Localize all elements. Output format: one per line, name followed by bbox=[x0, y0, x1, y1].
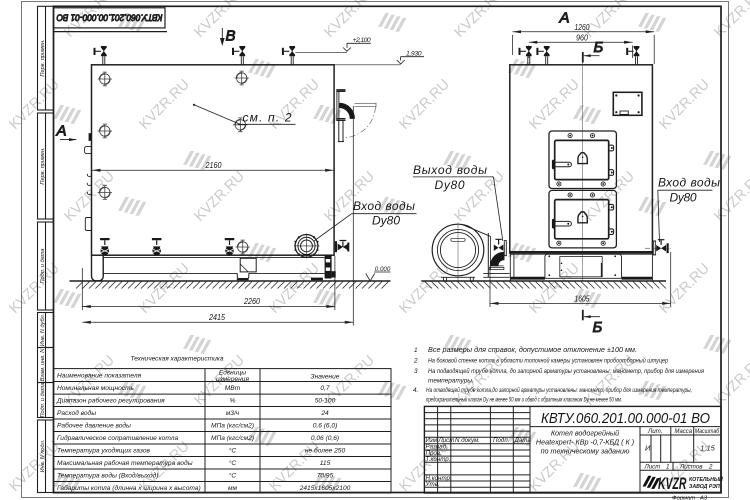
svg-text:24: 24 bbox=[320, 410, 329, 417]
svg-text:Листов: Листов bbox=[679, 464, 703, 471]
svg-text:МПа (кгс/см2): МПа (кгс/см2) bbox=[211, 423, 254, 430]
svg-text:Подп. и дата: Подп. и дата bbox=[40, 248, 46, 283]
svg-text:Инв. N дубл.: Инв. N дубл. bbox=[40, 314, 46, 346]
svg-text:А: А bbox=[559, 10, 570, 27]
svg-text:Б: Б bbox=[594, 39, 604, 56]
svg-text:Расход воды: Расход воды bbox=[57, 409, 96, 417]
svg-text:Габариты котла (длинна х ширин: Габариты котла (длинна х ширина х высота… bbox=[57, 484, 201, 492]
svg-text:Диапазон рабочего регулировани: Диапазон рабочего регулирования bbox=[56, 397, 165, 405]
svg-text:КВТУ.060.201.00.000-01 ВО: КВТУ.060.201.00.000-01 ВО bbox=[541, 411, 710, 427]
svg-text:А3: А3 bbox=[699, 495, 708, 500]
svg-text:KVZR.RU: KVZR.RU bbox=[192, 169, 248, 225]
svg-text:KVZR.RU: KVZR.RU bbox=[397, 261, 453, 317]
svg-text:Техническая характеристика: Техническая характеристика bbox=[131, 356, 224, 363]
svg-text:2: 2 bbox=[413, 358, 418, 365]
svg-text:предохранительный клапан Dу н: предохранительный клапан Dу не менее 50 … bbox=[426, 397, 622, 404]
svg-text:Инв. N подл.: Инв. N подл. bbox=[40, 440, 46, 473]
svg-text:KVZR.RU: KVZR.RU bbox=[527, 77, 583, 133]
svg-text:N докум.: N докум. bbox=[455, 437, 480, 444]
svg-text:KVZR.RU: KVZR.RU bbox=[7, 77, 63, 133]
svg-text:1,930: 1,930 bbox=[406, 50, 422, 57]
svg-text:KVZR.RU: KVZR.RU bbox=[267, 261, 323, 317]
svg-text:КВТУ.060.201.00.000-01 ВО: КВТУ.060.201.00.000-01 ВО bbox=[56, 12, 163, 23]
svg-text:KVZR.RU: KVZR.RU bbox=[322, 169, 378, 225]
svg-text:МПа (кгс/см2): МПа (кгс/см2) bbox=[211, 435, 254, 442]
svg-text:°С: °С bbox=[229, 472, 237, 480]
svg-text:Dy80: Dy80 bbox=[435, 178, 465, 192]
svg-text:Формат: Формат bbox=[672, 495, 695, 500]
svg-text:+2,100: +2,100 bbox=[353, 37, 371, 44]
svg-text:50-100: 50-100 bbox=[315, 398, 336, 405]
svg-text:%: % bbox=[230, 398, 236, 405]
svg-text:KVZR.RU: KVZR.RU bbox=[137, 261, 193, 317]
svg-text:1: 1 bbox=[666, 464, 669, 471]
svg-text:Heatexpert- КВр -0,7-КБД ( К ): Heatexpert- КВр -0,7-КБД ( К ) bbox=[536, 438, 634, 447]
svg-text:Рабочее давление воды: Рабочее давление воды bbox=[57, 422, 131, 430]
svg-text:KVZR.RU: KVZR.RU bbox=[137, 77, 193, 133]
svg-text:Наименование показателя: Наименование показателя bbox=[57, 373, 142, 380]
svg-text:см. п. 2: см. п. 2 bbox=[243, 111, 292, 125]
svg-text:KVZR.RU: KVZR.RU bbox=[712, 353, 750, 409]
svg-text:Взам. инв. N: Взам. инв. N bbox=[40, 348, 46, 382]
svg-text:не более 250: не более 250 bbox=[305, 447, 346, 455]
svg-text:2160: 2160 bbox=[205, 160, 222, 170]
svg-text:Перв. примен.: Перв. примен. bbox=[40, 39, 46, 76]
svg-text:Гидравлическое сопративление к: Гидравлическое сопративление котла bbox=[57, 434, 178, 442]
svg-text:°С: °С bbox=[229, 459, 237, 467]
svg-text:Т.контр.: Т.контр. bbox=[426, 456, 451, 463]
svg-text:мм: мм bbox=[228, 485, 238, 492]
svg-text:0,7: 0,7 bbox=[320, 385, 329, 392]
svg-text:измерения: измерения bbox=[216, 376, 249, 383]
svg-text:Масштаб: Масштаб bbox=[695, 428, 720, 435]
svg-text:4.: 4. bbox=[413, 387, 418, 394]
svg-text:Все размеры для справок, допус: Все размеры для справок, допустимое откл… bbox=[428, 345, 637, 354]
svg-text:2260: 2260 bbox=[243, 296, 260, 306]
svg-text:И: И bbox=[645, 444, 651, 453]
svg-text:0,6 (6,0): 0,6 (6,0) bbox=[313, 423, 338, 430]
svg-text:115: 115 bbox=[320, 460, 331, 467]
svg-text:3: 3 bbox=[414, 368, 418, 375]
svg-text:Вход воды: Вход воды bbox=[658, 176, 720, 190]
svg-text:1260: 1260 bbox=[575, 22, 590, 32]
svg-text:м3/ч: м3/ч bbox=[226, 410, 240, 417]
svg-text:2415: 2415 bbox=[208, 312, 225, 322]
svg-text:по техническому заданию: по техническому заданию bbox=[541, 447, 630, 456]
svg-text:Максимальная рабочая температу: Максимальная рабочая температура воды bbox=[57, 459, 193, 467]
svg-text:ЗАВОД РЭП: ЗАВОД РЭП bbox=[689, 484, 720, 490]
svg-text:Dy80: Dy80 bbox=[372, 214, 400, 228]
svg-text:1605: 1605 bbox=[575, 293, 590, 303]
svg-text:KVZR.RU: KVZR.RU bbox=[527, 261, 583, 317]
svg-text:°С: °С bbox=[229, 447, 237, 455]
svg-text:Масса: Масса bbox=[675, 428, 693, 435]
svg-text:2: 2 bbox=[708, 464, 713, 471]
svg-text:температуры.: температуры. bbox=[428, 378, 474, 385]
svg-text:KVZR: KVZR bbox=[658, 475, 687, 493]
svg-text:Котел водогрейный: Котел водогрейный bbox=[551, 429, 619, 438]
svg-text:Вход воды: Вход воды bbox=[353, 199, 415, 213]
svg-text:Dy80: Dy80 bbox=[670, 191, 697, 205]
svg-text:1: 1 bbox=[414, 347, 418, 354]
svg-text:На отводящей трубе котла,до за: На отводящей трубе котла,до запорной арм… bbox=[426, 387, 692, 394]
svg-text:А: А bbox=[56, 123, 67, 140]
svg-text:KVZR.RU: KVZR.RU bbox=[7, 261, 63, 317]
svg-text:70/95: 70/95 bbox=[317, 473, 334, 480]
svg-text:Лит.: Лит. bbox=[647, 428, 663, 435]
svg-text:Подп.: Подп. bbox=[493, 437, 509, 444]
svg-text:Перв. примен.: Перв. примен. bbox=[40, 147, 46, 184]
svg-text:Выход воды: Выход воды bbox=[413, 163, 487, 177]
svg-text:0,06 (0,6): 0,06 (0,6) bbox=[311, 435, 339, 442]
svg-text:МВт: МВт bbox=[225, 385, 241, 392]
svg-text:960: 960 bbox=[576, 32, 588, 42]
svg-text:KVZR.RU: KVZR.RU bbox=[657, 261, 713, 317]
svg-text:Подп. и дата: Подп. и дата bbox=[40, 382, 46, 417]
svg-text:KVZR.RU: KVZR.RU bbox=[657, 77, 713, 133]
svg-text:Лист: Лист bbox=[644, 464, 661, 471]
svg-text:Дата: Дата bbox=[514, 437, 532, 444]
svg-text:В: В bbox=[226, 28, 236, 45]
svg-text:Значение: Значение bbox=[311, 374, 340, 381]
svg-text:KVZR.RU: KVZR.RU bbox=[582, 169, 638, 225]
svg-text:2415х1605х2100: 2415х1605х2100 bbox=[299, 485, 351, 492]
svg-text:КОТЕЛЬНЫЙ: КОТЕЛЬНЫЙ bbox=[689, 475, 723, 483]
svg-text:KVZR.RU: KVZR.RU bbox=[397, 77, 453, 133]
svg-text:0.000: 0.000 bbox=[375, 266, 391, 273]
svg-text:На подводящей трубе котла, д: На подводящей трубе котла, до запорной а… bbox=[428, 367, 704, 375]
svg-text:На боковой стенке котла в обла: На боковой стенке котла в области топочн… bbox=[428, 357, 668, 365]
svg-text:Температура воды (Вход/выход): Температура воды (Вход/выход) bbox=[57, 472, 158, 480]
svg-text:1:15: 1:15 bbox=[700, 444, 715, 453]
svg-text:Утв.: Утв. bbox=[425, 481, 440, 488]
svg-text:Температура уходящих газов: Температура уходящих газов bbox=[57, 447, 150, 455]
svg-text:Номинальная мощность: Номинальная мощность bbox=[57, 385, 135, 392]
svg-text:Б: Б bbox=[593, 319, 603, 336]
